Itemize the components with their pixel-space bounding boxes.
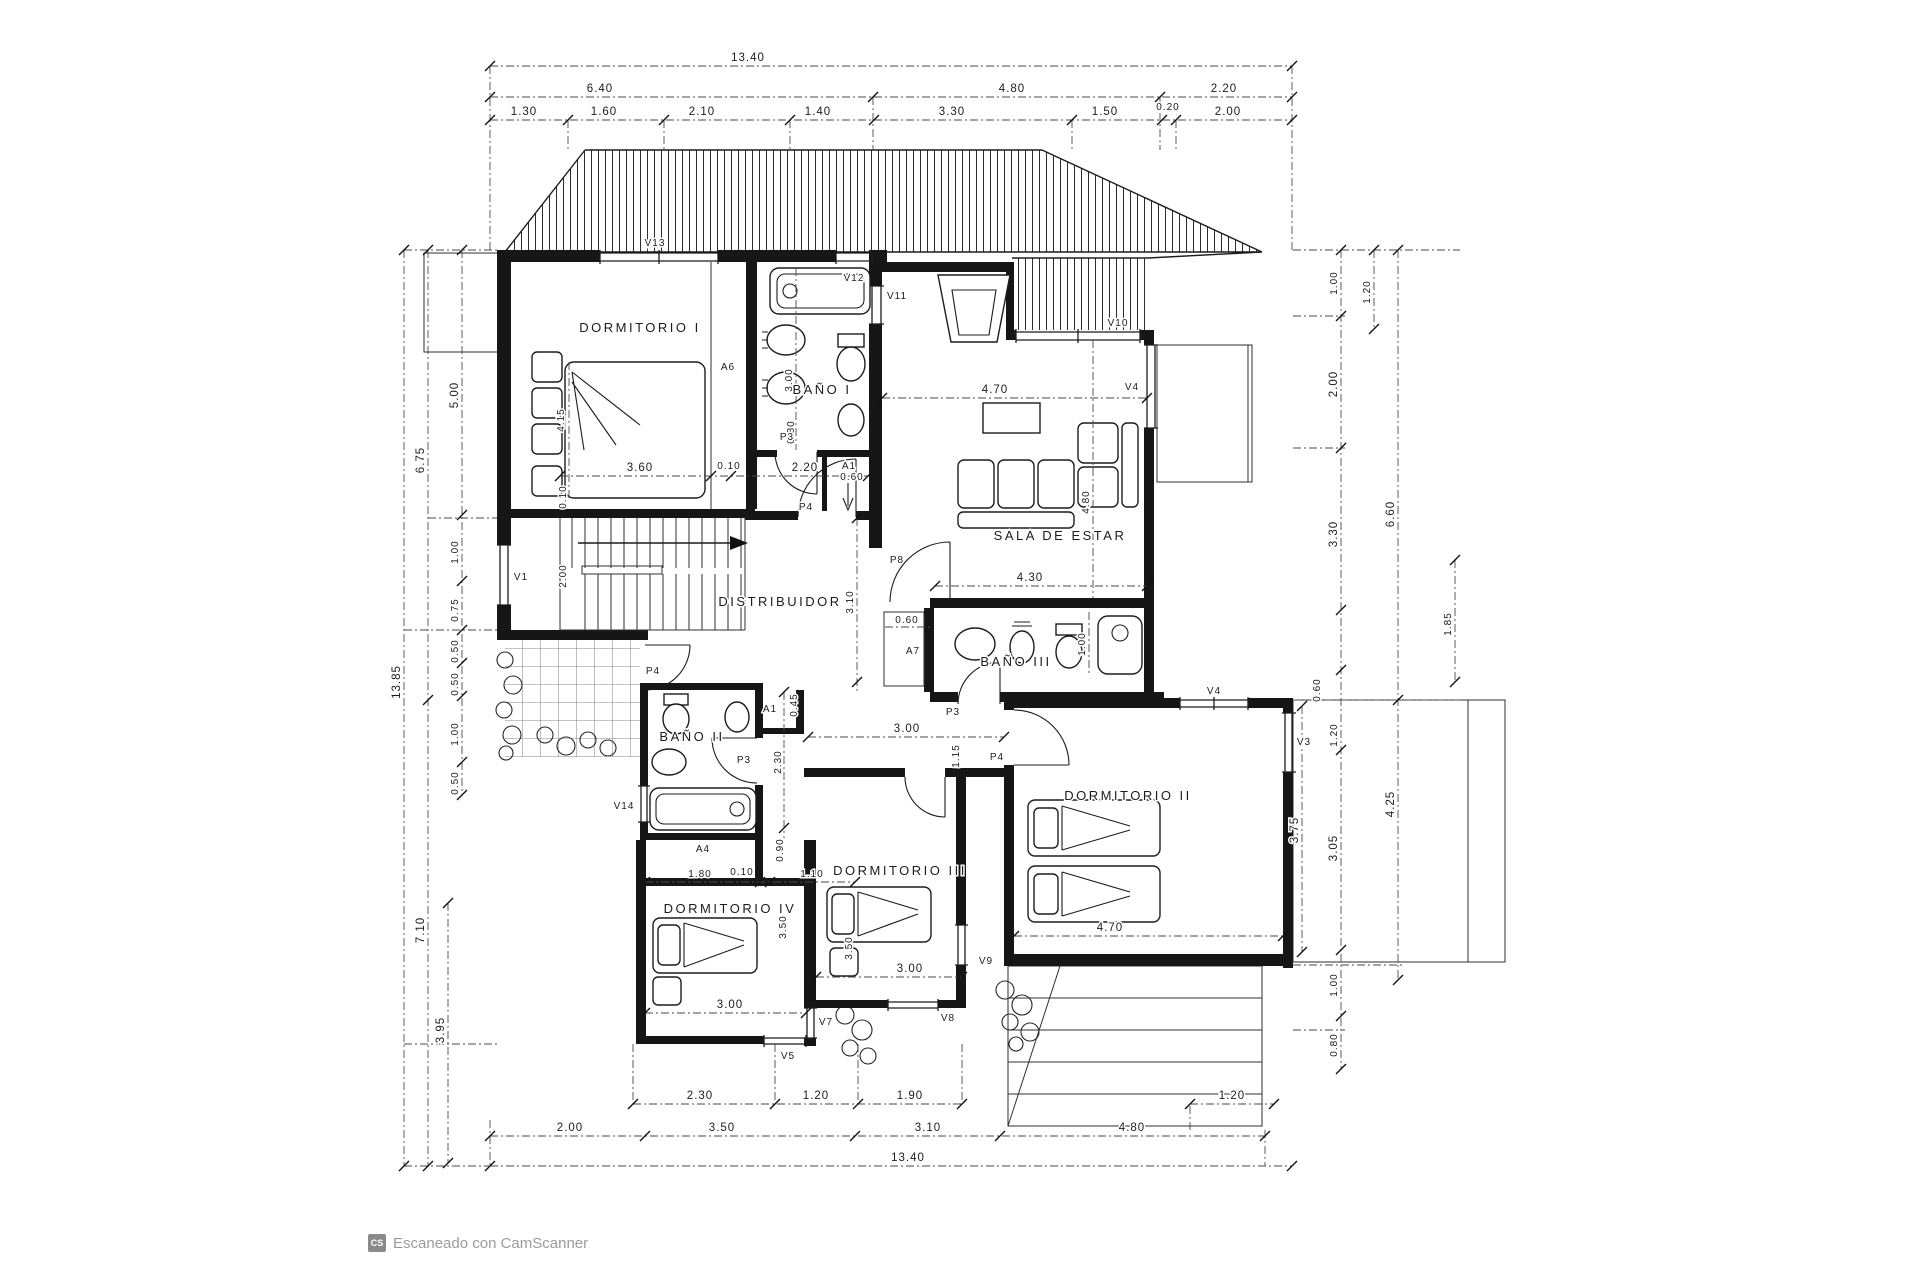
furniture-dormitorio4 [653,918,757,1005]
furniture-dormitorio2 [1028,800,1160,922]
window-v4-sala [1144,345,1158,428]
window-label-v12: V12 [844,273,865,284]
dim-5-00: 5.00 [449,382,461,408]
dim-3-05: 3.05 [1328,835,1340,861]
dim-ticks-right [1297,245,1460,1074]
dim-4-70: 4.70 [982,384,1008,396]
dim-1-80: 1.80 [688,869,711,880]
wall-segment [869,518,882,548]
dim-3-95: 3.95 [435,1017,447,1043]
room-label-sala: SALA DE ESTAR [994,528,1127,543]
camscanner-watermark-text: Escaneado con CamScanner [393,1235,588,1252]
window-label-v13: V13 [645,238,666,249]
sink [767,325,805,355]
dim-top-total: 13.40 [731,52,765,64]
sofa-back [958,512,1074,528]
camscanner-watermark: CS Escaneado con CamScanner [368,1234,588,1252]
bed-headboard [658,925,680,965]
dim-2-30: 2.30 [773,750,784,773]
dim-1-00: 1.00 [450,540,461,563]
coffee-table [983,403,1040,433]
wall-segment [640,683,763,690]
door-label-p3: P3 [946,707,960,718]
window-label-v1: V1 [514,572,528,583]
wall-segment [1144,428,1154,702]
wall-segment [763,728,804,734]
bed-headboard [1034,808,1058,848]
dim-2-20: 2.20 [1211,83,1237,95]
window-v10 [1016,329,1140,343]
door-p4-dorm2 [1014,710,1069,765]
door-label-p4: P4 [990,752,1004,763]
closet-label-a1: A1 [842,461,856,472]
sofa-cushion [958,460,994,508]
dim-3-10: 3.10 [845,590,856,613]
wall-segment [878,262,1014,272]
dim-1-20: 1.20 [1329,723,1340,746]
nightstand [532,352,562,382]
stairs-outline [1008,966,1262,1126]
nightstand [653,977,681,1005]
window-v14 [638,786,650,822]
wall-segment [869,324,882,456]
dim-4-80: 4.80 [1119,1122,1145,1134]
dim-2-00: 2.00 [1215,106,1241,118]
bed-headboard [1034,874,1058,914]
fireplace [938,275,1010,342]
dim-3-50: 3.50 [778,915,789,938]
sofa-cushion [998,460,1034,508]
wall-segment [1144,330,1154,345]
dim-6-75: 6.75 [415,447,427,473]
dim-1-00: 1.00 [1329,271,1340,294]
sink [652,749,686,775]
window-v8 [888,999,938,1011]
door-label-p4: P4 [646,666,660,677]
dim-0-60: 0.60 [1312,678,1323,701]
wall-segment [497,509,755,518]
room-label-dormitorio3: DORMITORIO III [833,863,967,878]
wall-segment [757,450,777,457]
dim-1-20: 1.20 [803,1090,829,1102]
terrace-trellis [1468,700,1505,962]
dim-2-10: 2.10 [689,106,715,118]
dim-1-20: 1.20 [1219,1090,1245,1102]
armchair-cushion [1078,423,1118,463]
window-label-v3: V3 [1297,737,1311,748]
dim-4-25: 4.25 [1385,791,1397,817]
wall-segment [636,1036,764,1044]
dim-1-30: 1.30 [511,106,537,118]
room-label-dormitorio2: DORMITORIO II [1064,788,1192,803]
wall-segment [956,770,966,925]
room-label-bano2: BAÑO II [659,729,724,744]
window-v1 [497,545,511,605]
porch-slab [424,253,507,352]
dim-2-00: 2.00 [558,564,569,587]
dim-3-30: 3.30 [939,106,965,118]
dim-1-60: 1.60 [591,106,617,118]
wall-segment [930,692,958,702]
closet-label-a4: A4 [696,844,710,855]
terrace-hatch-upper-right [1157,345,1252,482]
wall-segment [718,250,836,262]
dim-0-60: 0.60 [840,472,863,483]
door-label-p4: P4 [799,502,813,513]
roof-hatch [505,150,1262,330]
closet-label-a7: A7 [906,646,920,657]
dim-1-10: 1.10 [800,869,823,880]
window-label-v14: V14 [614,801,635,812]
window-label-v7: V7 [819,1017,833,1028]
dim-0-90: 0.90 [775,838,786,861]
patio [496,640,640,760]
entry-porch [424,253,507,352]
dim-1-00: 1.00 [1329,973,1340,996]
dim-0-10: 0.10 [558,485,569,508]
wall-segment [945,768,1014,777]
dim-13-85: 13.85 [391,665,403,699]
dim-chain-right [1293,250,1460,1069]
window-v11 [869,286,884,324]
wall-segment [1004,765,1014,958]
armchair-back [1122,423,1138,507]
dim-3-10: 3.10 [915,1122,941,1134]
toilet [837,347,865,381]
dim-0-50: 0.50 [450,771,461,794]
room-label-bano1: BAÑO I [792,382,851,397]
exterior-stairs [1008,966,1262,1126]
door-label-p8: P8 [890,555,904,566]
dim-6-60: 6.60 [1385,501,1397,527]
wall-segment [640,688,648,786]
window-label-v4: V4 [1125,382,1139,393]
window-v9 [955,925,968,965]
window-v4-dorm2 [1180,697,1248,710]
dim-0-50: 0.50 [450,639,461,662]
dim-0-60: 0.60 [895,615,918,626]
dim-0-10: 0.10 [730,867,753,878]
door-label-p3: P3 [737,755,751,766]
wall-segment [745,511,798,520]
wall-segment [497,250,600,262]
bidet-taps [1012,622,1032,626]
dim-1-40: 1.40 [805,106,831,118]
dim-1-20: 1.20 [1362,280,1373,303]
window-label-v11: V11 [887,291,907,302]
dim-4-80: 4.80 [999,83,1025,95]
dim-3-00: 3.00 [894,723,920,735]
bidet [838,404,864,436]
dim-1-85: 1.85 [1443,612,1454,635]
door-p8-sala [890,542,950,602]
wall-segment [755,690,763,738]
dim-4-70: 4.70 [1097,922,1123,934]
plant-icon [996,981,1039,1051]
dim-3-00: 3.00 [717,999,743,1011]
wall-segment [804,1000,888,1008]
room-label-dormitorio1: DORMITORIO I [579,320,700,335]
furniture-bano1 [762,268,870,436]
wall-segment [640,833,763,840]
window-label-v10: V10 [1108,318,1129,329]
closet-partition [822,456,827,511]
wall-segment [497,518,511,545]
dim-3-50: 3.50 [844,936,855,959]
dim-0-20: 0.20 [1156,102,1179,113]
room-label-distribuidor: DISTRIBUIDOR [718,594,841,609]
dim-1-00: 1.00 [1077,632,1088,655]
dim-6-40: 6.40 [587,83,613,95]
camscanner-logo-icon: CS [368,1234,386,1252]
dim-2-20: 2.20 [792,462,818,474]
wall-segment [1283,698,1293,713]
dim-3-30: 3.30 [1328,521,1340,547]
sofa-cushion [1038,460,1074,508]
plant-icon [836,1006,876,1064]
wall-segment [956,965,966,1008]
room-label-bano3: BAÑO III [980,654,1051,669]
wall-segment [869,456,882,511]
window-v3 [1282,713,1296,772]
bed-headboard [832,894,854,934]
door-label-p3: P3 [780,432,794,443]
wall-segment [1004,954,1293,966]
door-arrow-vestibule [843,483,853,510]
dim-1-15: 1.15 [951,744,962,767]
floor-plan-drawing: 13.40 6.40 4.80 2.20 1.30 1.60 2.10 1.40… [0,0,1920,1280]
dim-1-90: 1.90 [897,1090,923,1102]
window-v5 [764,1035,806,1047]
dim-0-45: 0.45 [789,693,800,716]
wall-segment [1004,698,1014,710]
dim-1-00: 1.00 [450,722,461,745]
wall-segment [1006,262,1014,340]
wall-segment [1014,698,1180,708]
wall-segment [1283,772,1293,968]
dim-0-75: 0.75 [450,598,461,621]
door-dorm3 [905,777,945,817]
stair-steps [1008,966,1262,1126]
wall-segment [804,840,816,1008]
toilet-tank [838,334,864,347]
wall-segment [804,768,905,777]
wall-segment [755,833,763,878]
dim-bottom-total: 13.40 [891,1152,925,1164]
dim-3-60: 3.60 [627,462,653,474]
dim-4-15: 4.15 [556,408,567,431]
window-label-v8: V8 [941,1013,955,1024]
dim-2-00: 2.00 [1328,371,1340,397]
dim-2-00: 2.00 [557,1122,583,1134]
dim-0-50: 0.50 [450,672,461,695]
dim-3-50: 3.50 [709,1122,735,1134]
closet-label-a6: A6 [721,362,735,373]
wall-segment [930,598,1154,608]
scanned-floor-plan-page: 13.40 6.40 4.80 2.20 1.30 1.60 2.10 1.40… [0,0,1920,1280]
bidet [725,702,749,732]
wall-segment [817,450,869,457]
dim-3-75: 3.75 [1289,817,1301,843]
dim-0-80: 0.80 [1329,1033,1340,1056]
terrace-hatch-right [1293,700,1505,962]
dim-2-30: 2.30 [687,1090,713,1102]
window-label-v5: V5 [781,1051,795,1062]
interior-stairs [560,518,748,630]
dim-7-10: 7.10 [415,917,427,943]
dim-4-30: 4.30 [1017,572,1043,584]
wall-segment [1006,330,1016,340]
wall-segment [497,630,648,640]
dim-4-80: 4.80 [1081,490,1092,513]
wall-segment [746,262,757,509]
right-terrace [1293,700,1505,962]
window-label-v9: V9 [979,956,993,967]
room-label-dormitorio4: DORMITORIO IV [664,901,797,916]
roof-area [505,150,1262,252]
side-terrace [1157,345,1252,482]
wall-segment [497,250,511,518]
closet-label-a1: A1 [763,704,777,715]
wall-segment [924,608,934,692]
window-label-v4: V4 [1207,686,1221,697]
dim-1-50: 1.50 [1092,106,1118,118]
dim-0-10: 0.10 [717,461,740,472]
dim-3-00: 3.00 [897,963,923,975]
